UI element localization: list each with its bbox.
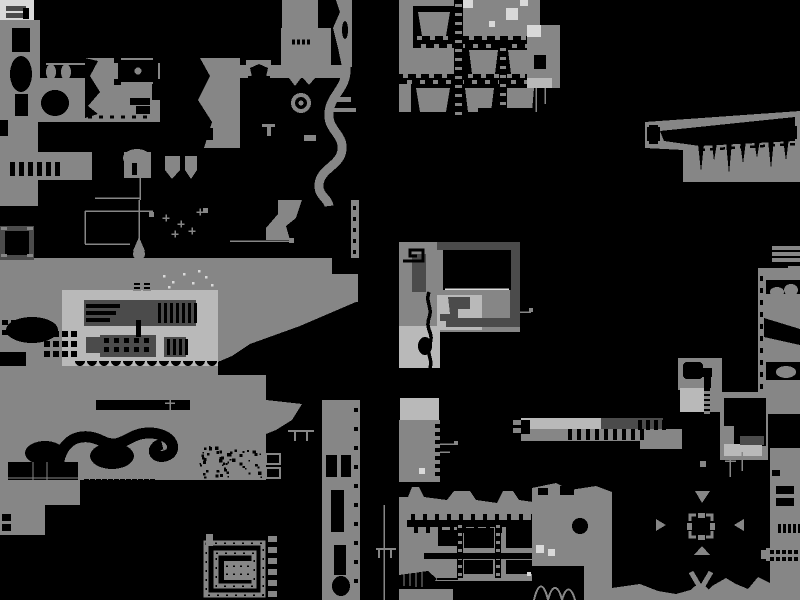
dot-cluster [168, 286, 171, 289]
terrain-block [149, 212, 154, 217]
slat-row [20, 320, 26, 325]
terrain-block [267, 127, 271, 136]
terrain-block [206, 534, 213, 546]
terrain-block [0, 120, 8, 136]
slat-row [46, 162, 51, 176]
slat-row [770, 557, 774, 561]
slat-row [90, 479, 95, 484]
slat-row [577, 429, 581, 440]
terrain-block [224, 561, 253, 580]
vault-room [443, 250, 511, 290]
terrain-block [334, 545, 346, 575]
terrain-block [152, 84, 160, 100]
slat-row [622, 429, 626, 440]
slat-row [496, 549, 500, 552]
slat-row [71, 351, 77, 357]
speckle-field [220, 474, 223, 477]
cave-blob [332, 576, 350, 596]
slat-row [164, 303, 167, 323]
slat-row [179, 339, 182, 355]
slat-row [447, 514, 451, 520]
slat-row [500, 66, 506, 69]
slat-row [434, 44, 439, 48]
terrain-block [489, 21, 495, 27]
terrain-block [772, 246, 800, 250]
slat-row [435, 432, 440, 436]
speckle-field [215, 475, 218, 478]
dot-cluster [198, 270, 201, 273]
terrain-block [5, 231, 29, 255]
terrain-block [86, 311, 116, 315]
conveyor [521, 418, 603, 429]
slat-row [455, 13, 462, 16]
terrain-block [282, 0, 318, 30]
dotted-ladder [268, 591, 277, 597]
slat-row [417, 36, 422, 40]
slat-row [44, 341, 50, 347]
terrain-block [772, 258, 800, 262]
speckle-field [259, 453, 261, 455]
slat-row [486, 44, 491, 48]
slat-row [458, 565, 462, 568]
slat-row [455, 49, 462, 52]
slat-row [446, 80, 451, 84]
terrain-block [560, 486, 574, 495]
slat-row [354, 579, 358, 583]
slat-row [420, 80, 425, 84]
slat-row [354, 446, 358, 450]
speckle-field [253, 450, 256, 453]
slat-row [62, 351, 68, 357]
terrain-block [698, 535, 705, 540]
slat-row [354, 503, 358, 507]
slat-row [455, 112, 462, 115]
terrain-block [724, 444, 762, 456]
terrain-block [424, 553, 540, 559]
cave-blob [418, 337, 432, 355]
terrain-block [527, 25, 541, 37]
speckle-field [203, 473, 205, 475]
terrain-block [658, 123, 662, 127]
map-dot [572, 518, 588, 534]
slat-row [447, 44, 452, 48]
terrain-block [331, 490, 344, 532]
terrain-block [144, 283, 150, 285]
terrain-block [645, 123, 649, 127]
speckle-field [227, 454, 229, 456]
slat-row [20, 330, 26, 335]
speckle-field [240, 454, 243, 457]
terrain-block [772, 252, 800, 256]
slat-row [11, 330, 17, 335]
slat-row [455, 94, 462, 97]
slat-row [167, 339, 170, 355]
slat-row [29, 330, 35, 335]
slat-row [512, 44, 517, 48]
hash-glyph [133, 280, 141, 291]
terrain-poly [416, 88, 450, 112]
slat-row [760, 348, 763, 353]
slat-row [435, 464, 440, 468]
terrain-block [536, 545, 544, 553]
terrain-block [772, 470, 780, 476]
slat-row [760, 372, 763, 377]
speckle-field [258, 467, 260, 469]
slat-row [631, 429, 635, 440]
slat-row [473, 44, 478, 48]
slat-row [442, 74, 447, 78]
slat-row [120, 479, 125, 484]
slat-row [500, 57, 506, 60]
slat-row [354, 560, 358, 564]
terrain-block [463, 0, 473, 8]
terrain-block [687, 523, 692, 530]
speckle-field [206, 470, 208, 472]
speckle-field [226, 463, 228, 465]
slat-row [71, 341, 77, 347]
slat-row [353, 217, 356, 221]
terrain-block [12, 28, 30, 52]
terrain-block [464, 528, 494, 548]
slat-row [435, 514, 439, 520]
slat-row [11, 320, 17, 325]
slat-row [521, 36, 526, 40]
speckle-field [248, 460, 250, 462]
slat-row [173, 339, 176, 355]
cave-blob [46, 64, 56, 80]
terrain-poly [418, 12, 450, 36]
slat-row [416, 74, 421, 78]
slat-row [458, 525, 462, 528]
speckle-field [245, 468, 247, 470]
terrain-block [281, 28, 331, 65]
slat-row [455, 40, 462, 43]
slat-row [482, 36, 487, 40]
terrain-block [529, 308, 533, 312]
terrain-block [698, 513, 705, 518]
slat-row [500, 84, 506, 87]
speckle-field [204, 458, 207, 461]
corridor [407, 520, 540, 527]
slat-row [158, 303, 161, 323]
terrain-block [153, 57, 160, 63]
terrain-block [134, 287, 140, 289]
hash-glyph [143, 280, 151, 291]
slat-row [760, 384, 763, 389]
slat-row [776, 557, 780, 561]
cave-blob [25, 441, 65, 465]
slat-row [53, 351, 59, 357]
terrain-block [640, 441, 682, 449]
slat-row [429, 74, 434, 78]
terrain-block [114, 57, 121, 63]
slat-row [134, 338, 139, 343]
slat-row [44, 331, 50, 337]
slat-row [455, 31, 462, 34]
speckle-field [219, 459, 222, 462]
world-map [0, 0, 800, 600]
slat-row [776, 550, 780, 554]
terrain-block [513, 420, 521, 425]
slat-row [772, 126, 776, 139]
slat-row [507, 74, 512, 78]
comb-slats [783, 524, 786, 533]
slat-row [134, 347, 139, 352]
slat-row [760, 336, 763, 341]
slat-row [138, 479, 143, 484]
terrain-block [419, 468, 425, 474]
speckle-field [242, 451, 244, 453]
terrain-block [454, 441, 458, 445]
speckle-field [218, 471, 220, 473]
slat-row [640, 429, 644, 440]
slat-row [654, 420, 658, 430]
slat-row [62, 341, 68, 347]
slat-row [455, 103, 462, 106]
slat-row [354, 465, 358, 469]
speckle-field [200, 465, 202, 467]
speckle-field [230, 459, 232, 461]
slat-row [28, 162, 33, 176]
slat-row [435, 440, 440, 444]
slat-row [455, 22, 462, 25]
slat-row [435, 456, 440, 460]
speckle-field [223, 463, 225, 465]
speckle-field [258, 471, 261, 474]
terrain-block [776, 498, 794, 506]
slat-row [520, 74, 525, 78]
dot-cluster [172, 281, 175, 284]
slat-row [114, 338, 119, 343]
slat-row [500, 48, 506, 51]
terrain-block [326, 455, 337, 477]
terrain-block [453, 589, 540, 600]
cave-blob [61, 64, 71, 80]
slat-row [485, 80, 490, 84]
terrain-block [86, 337, 100, 353]
terrain-block [333, 97, 351, 102]
slat-row [508, 36, 513, 40]
dotted-ladder [268, 569, 277, 575]
terrain-block [601, 418, 663, 429]
terrain-block [527, 572, 531, 576]
slat-row [471, 514, 475, 520]
slat-row [496, 541, 500, 544]
slat-row [507, 514, 511, 520]
slat-row [760, 300, 763, 305]
eye-pupil [299, 101, 304, 106]
terrain-block [399, 589, 453, 600]
terrain-block [27, 227, 33, 230]
slat-row [495, 36, 500, 40]
slat-row [483, 514, 487, 520]
slat-row [455, 85, 462, 88]
speckle-field [201, 455, 203, 457]
slat-row [704, 396, 710, 399]
speckle-field [203, 452, 205, 454]
slat-row [500, 75, 506, 78]
terrain-block [510, 242, 520, 327]
slat-row [2, 330, 8, 335]
comb-slats [793, 524, 796, 533]
dot-cluster [211, 284, 214, 287]
slat-row [568, 429, 572, 440]
terrain-block [704, 376, 711, 388]
slat-row [704, 406, 710, 409]
terrain-block [341, 455, 351, 477]
speckle-field [260, 476, 262, 478]
slat-row [458, 541, 462, 544]
slat-row [458, 573, 462, 576]
terrain-block [203, 128, 213, 140]
slat-row [443, 36, 448, 40]
slat-row [354, 408, 358, 412]
slat-row [188, 303, 191, 323]
speckle-field [249, 473, 251, 475]
terrain-block [134, 283, 140, 285]
slat-row [2, 320, 8, 325]
terrain-block [645, 141, 649, 145]
slat-row [37, 162, 42, 176]
speckle-field [240, 463, 243, 466]
slat-row [423, 514, 427, 520]
ladder [136, 320, 141, 337]
terrain-block [680, 388, 708, 412]
speckle-field [215, 447, 218, 450]
terrain-block [130, 98, 150, 105]
slat-row [704, 411, 710, 414]
terrain-block [538, 488, 548, 495]
slat-row [53, 331, 59, 337]
slat-row [426, 527, 430, 533]
cave-blob [41, 90, 69, 116]
slat-row [760, 360, 763, 365]
slat-row [132, 479, 137, 484]
slat-row [144, 479, 149, 484]
speckle-field [220, 457, 222, 459]
terrain-block [513, 428, 521, 433]
slat-row [354, 484, 358, 488]
slat-row [55, 162, 60, 176]
terrain-block [532, 566, 584, 600]
comb-slats [788, 524, 791, 533]
slat-row [104, 338, 109, 343]
terrain-poly [469, 50, 498, 74]
terrain-block [304, 135, 316, 141]
slat-row [455, 4, 462, 7]
comb-slats [778, 524, 781, 533]
slat-row [84, 479, 89, 484]
slat-row [433, 80, 438, 84]
speckle-field [204, 447, 206, 449]
speckle-field [224, 467, 226, 469]
slat-row [144, 338, 149, 343]
slat-row [646, 420, 650, 430]
slat-row [782, 557, 786, 561]
speckle-field [227, 472, 229, 474]
slat-row [481, 74, 486, 78]
terrain-block [700, 461, 706, 467]
slat-row [176, 303, 179, 323]
slat-row [782, 550, 786, 554]
slat-row [494, 74, 499, 78]
terrain-block [438, 530, 457, 546]
slat-row [794, 550, 798, 554]
terrain-block [262, 124, 275, 127]
slat-row [96, 479, 101, 484]
slat-row [770, 550, 774, 554]
slat-row [170, 303, 173, 323]
slat-row [793, 126, 797, 139]
speckle-field [203, 461, 206, 464]
terrain-block [506, 8, 518, 20]
slat-row [662, 420, 666, 430]
cave-blob [776, 366, 796, 378]
slat-row [496, 573, 500, 576]
terrain-block [289, 238, 294, 243]
terrain-block [464, 560, 493, 574]
slat-row [353, 239, 356, 243]
terrain-block [2, 524, 11, 531]
terrain-block [203, 208, 208, 213]
terrain-block [534, 55, 546, 69]
terrain-block [520, 0, 528, 6]
terrain-block [332, 258, 358, 274]
slat-row [182, 303, 185, 323]
slat-row [435, 448, 440, 452]
speckle-field [247, 450, 249, 452]
speckle-field [255, 464, 257, 466]
slat-row [354, 427, 358, 431]
slat-row [407, 80, 412, 84]
dotted-ladder [268, 536, 277, 542]
cave-blob [90, 443, 134, 469]
slat-row [144, 347, 149, 352]
map-dot [135, 68, 142, 75]
slat-row [613, 429, 617, 440]
terrain-block [0, 480, 80, 505]
slat-row [102, 479, 107, 484]
terrain-block [23, 8, 29, 19]
terrain-block [0, 352, 26, 366]
terrain-block [400, 398, 439, 420]
slat-row [114, 479, 119, 484]
cave-blob [342, 21, 348, 39]
slat-row [760, 312, 763, 317]
slat-row [496, 533, 500, 536]
terrain-block [700, 368, 712, 377]
slat-row [150, 479, 155, 484]
terrain-block [1, 254, 7, 257]
terrain-block [114, 79, 121, 85]
terrain-block [708, 388, 722, 412]
slat-row [500, 93, 506, 96]
cave-blob [770, 287, 784, 297]
slat-row [353, 206, 356, 210]
cave-blob [10, 56, 32, 92]
terrain-block [521, 429, 682, 441]
slat-row [496, 565, 500, 568]
dot-cluster [192, 282, 195, 285]
dot-cluster [205, 276, 208, 279]
slat-row [638, 420, 642, 430]
slat-row [194, 303, 197, 323]
terrain-block [521, 420, 530, 434]
slat-row [760, 324, 763, 329]
slat-row [354, 541, 358, 545]
slat-row [458, 533, 462, 536]
slat-row [496, 525, 500, 528]
